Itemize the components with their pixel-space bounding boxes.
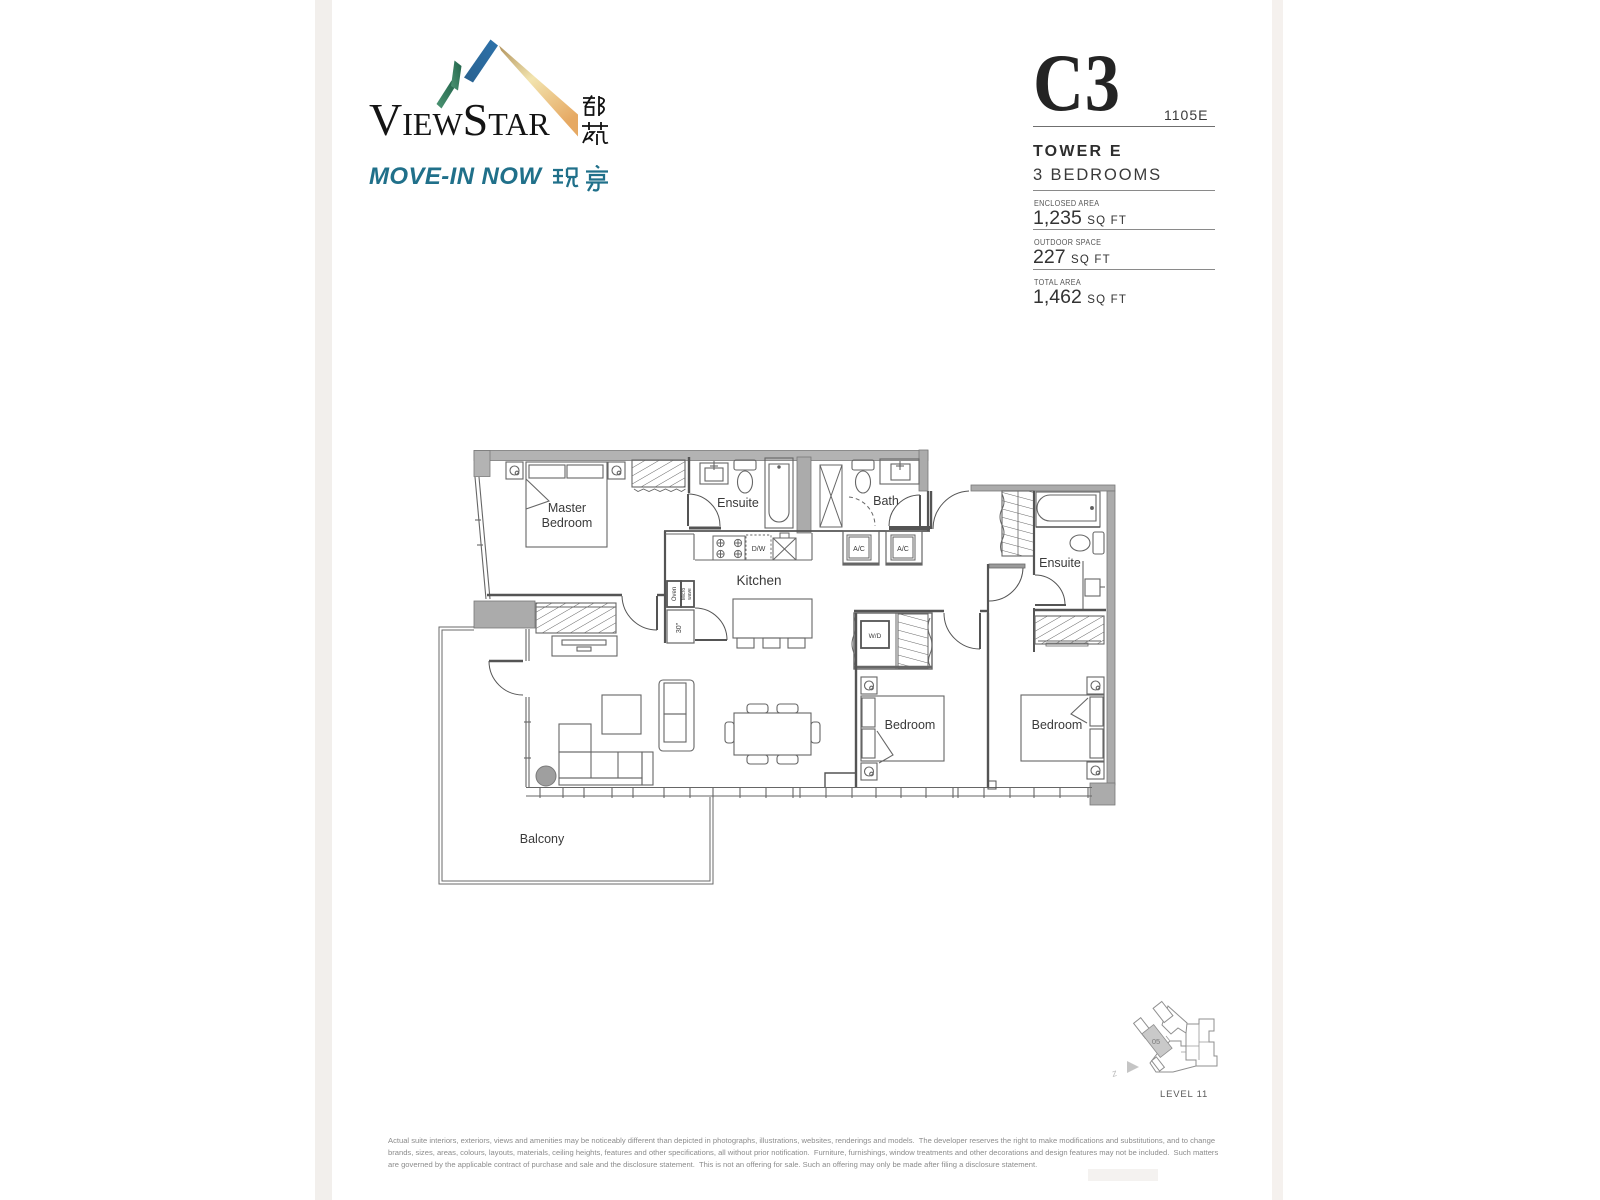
svg-text:A/C: A/C: [853, 546, 865, 553]
svg-text:Ensuite: Ensuite: [717, 496, 759, 510]
svg-text:W/D: W/D: [869, 633, 882, 640]
svg-text:D/W: D/W: [752, 546, 766, 553]
svg-text:Balcony: Balcony: [520, 832, 565, 846]
svg-text:Bedroom: Bedroom: [542, 516, 593, 530]
svg-text:Bedroom: Bedroom: [1032, 718, 1083, 732]
svg-text:A/C: A/C: [897, 546, 909, 553]
svg-text:Master: Master: [548, 501, 586, 515]
svg-text:05: 05: [1152, 1037, 1160, 1046]
svg-text:Ensuite: Ensuite: [1039, 556, 1081, 570]
svg-text:Oven: Oven: [672, 587, 678, 601]
svg-text:Kitchen: Kitchen: [736, 573, 781, 588]
svg-text:wave: wave: [687, 588, 693, 600]
svg-text:30": 30": [676, 622, 683, 633]
svg-text:Bath: Bath: [873, 494, 899, 508]
svg-text:z: z: [1110, 1068, 1119, 1080]
svg-text:Bedroom: Bedroom: [885, 718, 936, 732]
